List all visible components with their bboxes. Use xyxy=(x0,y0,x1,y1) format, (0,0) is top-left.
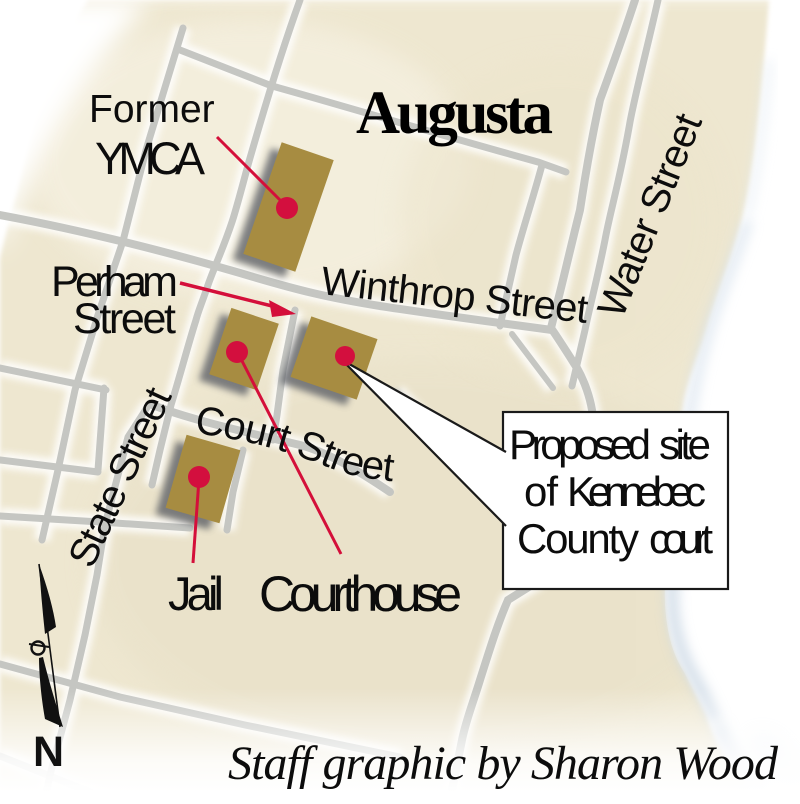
svg-text:Street: Street xyxy=(73,295,176,343)
svg-text:Kennebec: Kennebec xyxy=(567,468,706,515)
svg-text:site: site xyxy=(659,421,711,468)
svg-text:court: court xyxy=(649,515,713,562)
svg-text:Courthouse: Courthouse xyxy=(259,566,462,622)
svg-text:County: County xyxy=(517,515,639,562)
svg-text:Staff graphic by Sharon Wood: Staff graphic by Sharon Wood xyxy=(228,737,779,790)
svg-text:N: N xyxy=(33,728,64,776)
svg-text:of: of xyxy=(524,468,558,515)
svg-text:Proposed: Proposed xyxy=(509,421,651,468)
svg-text:YMCA: YMCA xyxy=(95,133,205,184)
svg-text:Augusta: Augusta xyxy=(356,80,553,147)
svg-text:Former: Former xyxy=(89,88,215,131)
svg-text:Jail: Jail xyxy=(168,567,224,620)
